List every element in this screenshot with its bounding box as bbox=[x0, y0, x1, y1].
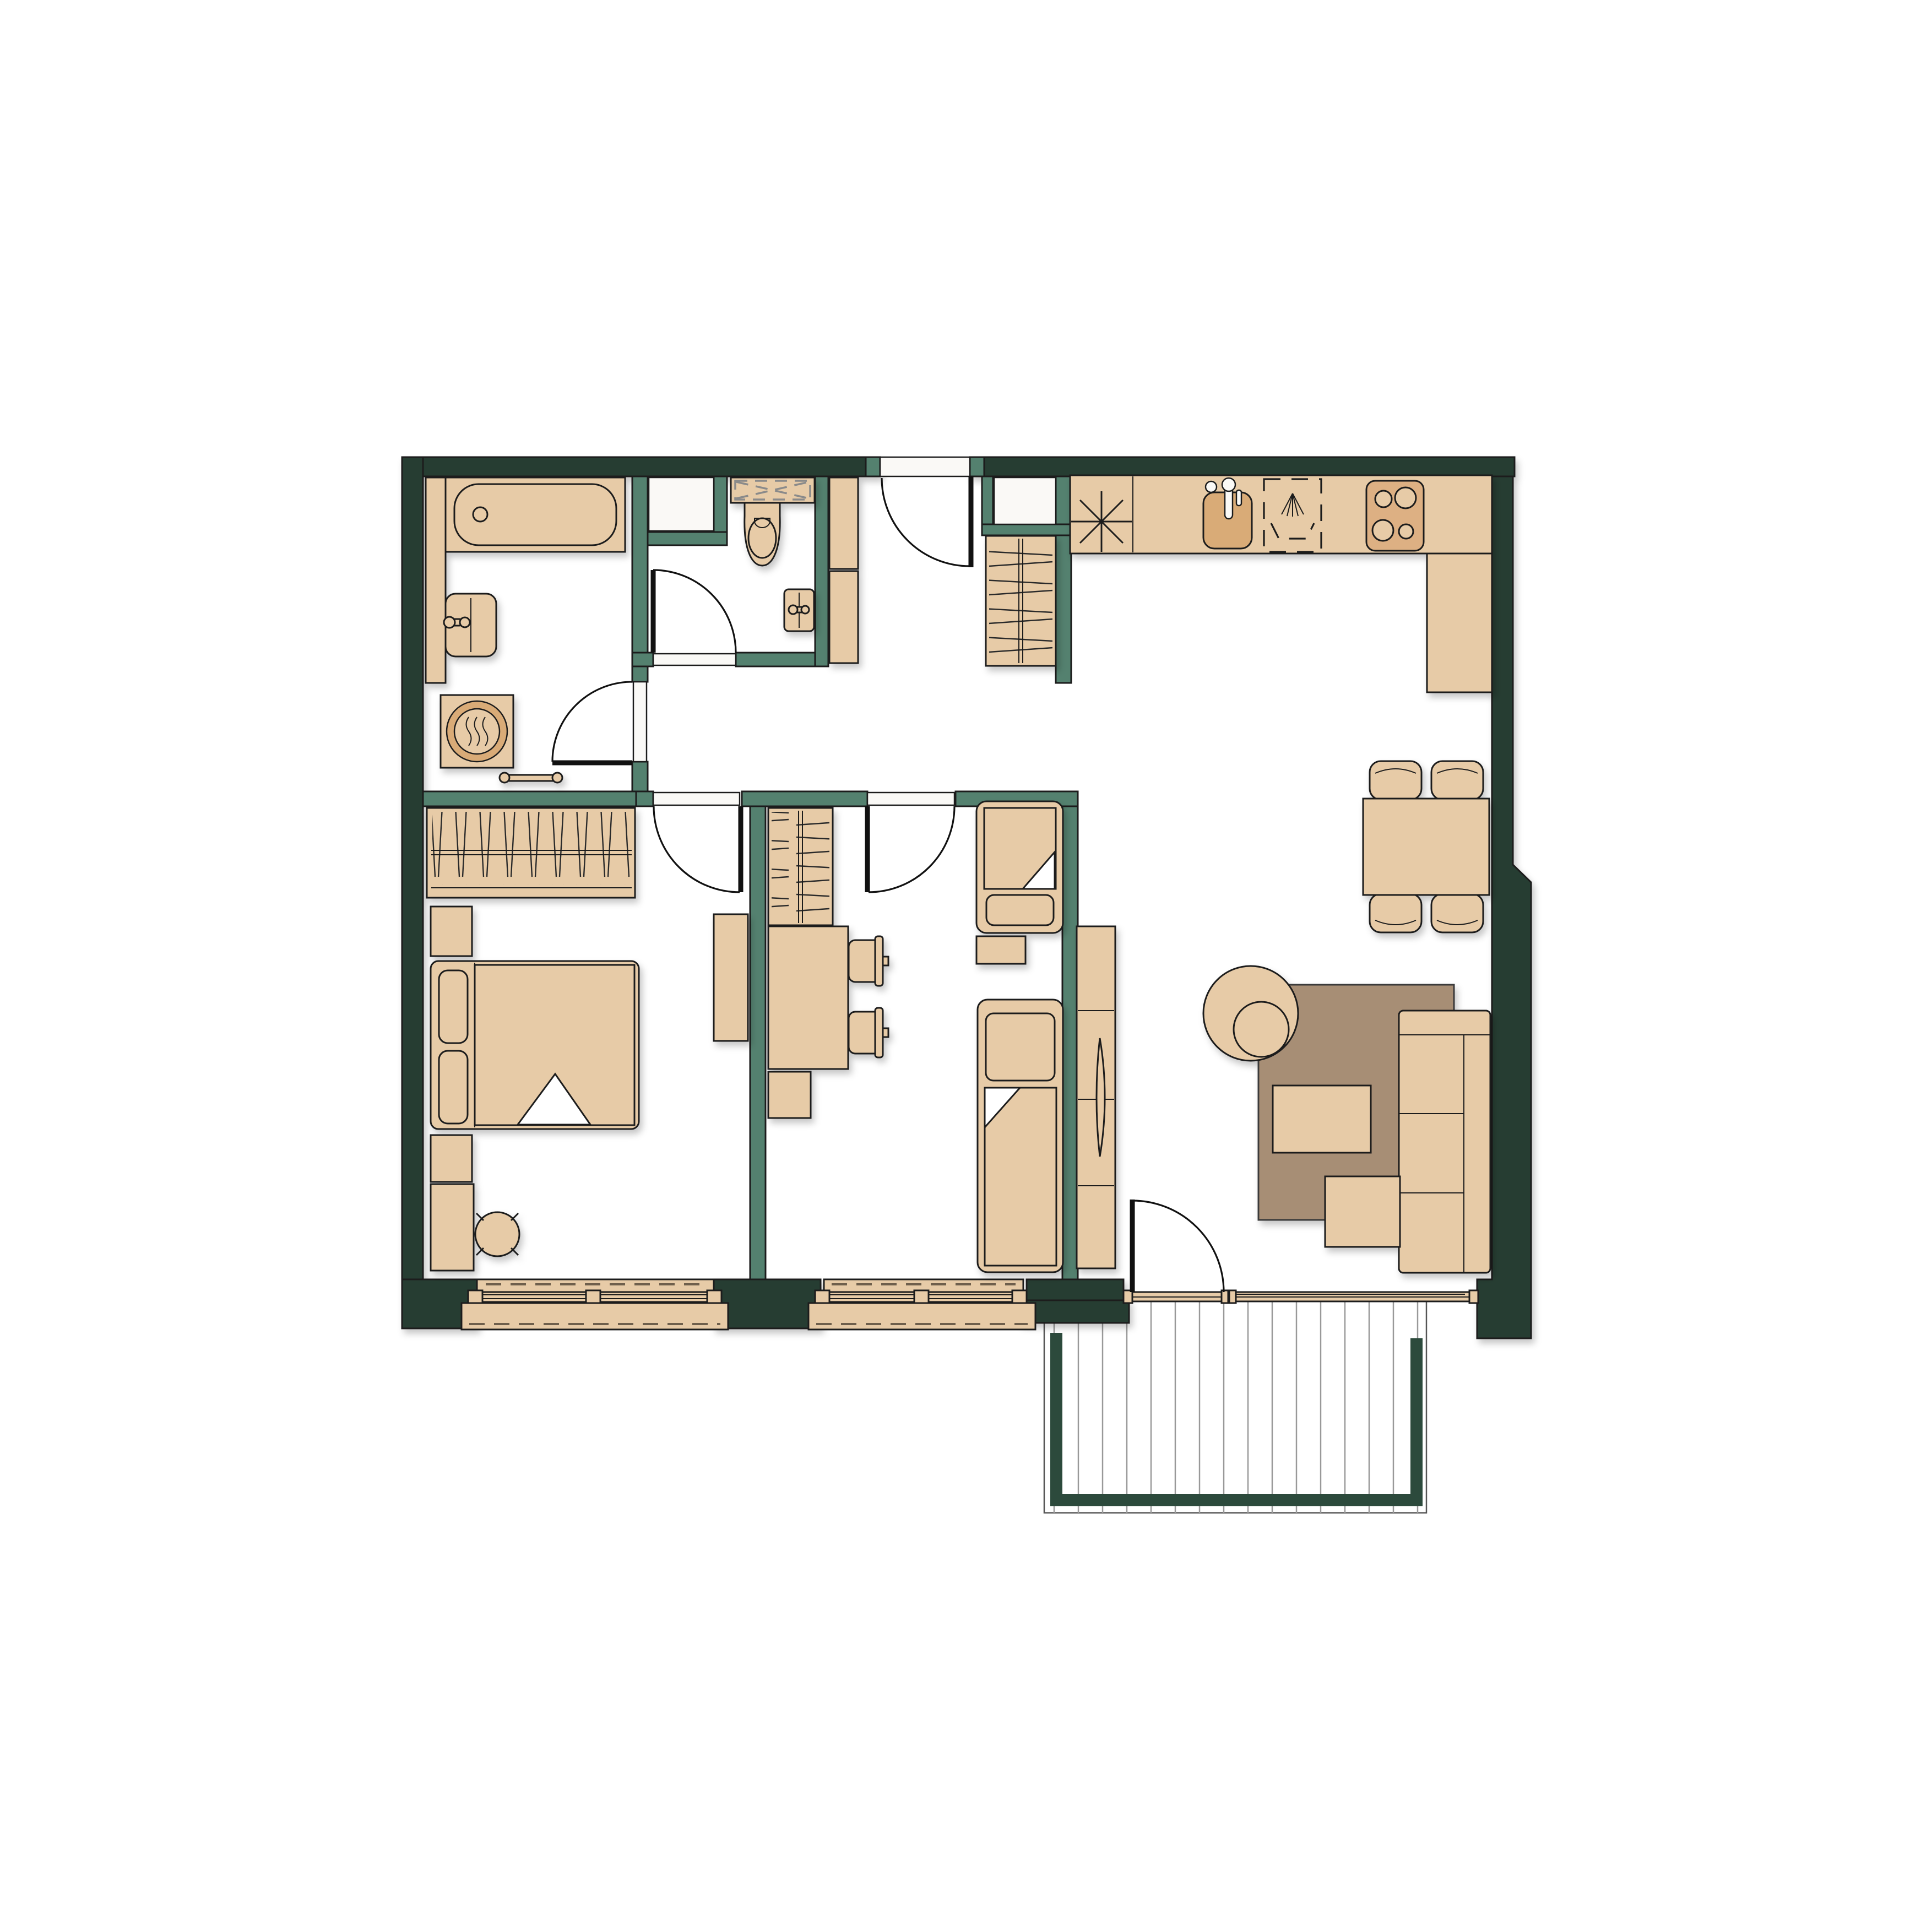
coffee-table bbox=[1273, 1086, 1371, 1153]
chaise bbox=[1325, 1176, 1400, 1247]
wall-bottom-mid bbox=[714, 1279, 821, 1328]
bathroom-door bbox=[552, 682, 632, 763]
window-post bbox=[1012, 1290, 1027, 1303]
wall-bedroom-door-post bbox=[636, 791, 653, 806]
wall-top-right bbox=[970, 457, 1515, 476]
doors bbox=[552, 476, 1224, 1292]
dresser bbox=[431, 1184, 474, 1271]
wall-hall-kitchen bbox=[1056, 476, 1071, 683]
wall-bottom-jog-lower bbox=[1021, 1300, 1129, 1323]
bedroom-closet bbox=[427, 808, 635, 898]
kids-door bbox=[867, 806, 954, 892]
tall-cabinet-lower bbox=[829, 571, 858, 663]
coat-closet bbox=[986, 536, 1056, 666]
balcony-door bbox=[1132, 1200, 1224, 1292]
wall-niche-left bbox=[982, 476, 993, 524]
desk bbox=[768, 926, 848, 1069]
wall-bathroom-right bbox=[632, 476, 648, 682]
toilet bbox=[745, 503, 780, 566]
entrance-door bbox=[882, 476, 971, 567]
window-post bbox=[468, 1290, 482, 1303]
bedroom-shelf bbox=[714, 914, 748, 1041]
tall-cabinet-upper bbox=[829, 477, 858, 569]
single-bed-bottom bbox=[978, 1000, 1063, 1272]
wall-bedroom-top-left bbox=[423, 791, 636, 806]
window-post bbox=[815, 1290, 829, 1303]
water-heater bbox=[441, 695, 513, 768]
wall-corridor-mid bbox=[742, 791, 867, 806]
desk-chair bbox=[849, 936, 888, 986]
wall-left bbox=[402, 457, 423, 1301]
threshold-post bbox=[1469, 1290, 1478, 1303]
wall-niche-bottom bbox=[982, 524, 1071, 535]
bedroom-door-opening bbox=[653, 793, 740, 805]
pillow bbox=[439, 1051, 468, 1124]
balcony-threshold bbox=[1124, 1290, 1478, 1303]
cistern bbox=[731, 477, 815, 503]
window-sill bbox=[462, 1303, 728, 1329]
dining-chair bbox=[1370, 894, 1421, 932]
balcony bbox=[1044, 1301, 1426, 1513]
pillow bbox=[986, 895, 1054, 925]
kitchen-counter-arm bbox=[1427, 553, 1492, 692]
kids-room bbox=[768, 801, 1063, 1272]
balcony-decking bbox=[1044, 1301, 1426, 1513]
window-sill bbox=[808, 1303, 1035, 1329]
bedside-cabinet bbox=[976, 936, 1025, 964]
floor-plan-canvas bbox=[0, 0, 1932, 1932]
bathroom-counter bbox=[426, 477, 446, 683]
desk-chair bbox=[849, 1008, 888, 1057]
entry-post-right bbox=[970, 457, 984, 476]
bedroom-window bbox=[462, 1279, 728, 1329]
wall-bottom-jog-upper bbox=[1027, 1279, 1124, 1301]
dining-chair bbox=[1370, 761, 1421, 800]
double-bed bbox=[431, 961, 639, 1129]
nightstand bbox=[431, 1135, 472, 1182]
dining-chair bbox=[1431, 894, 1483, 932]
wc-sink-cabinet bbox=[784, 589, 814, 631]
window-post bbox=[707, 1290, 721, 1303]
armchair bbox=[1203, 966, 1298, 1061]
wall-wc-bottom-left bbox=[632, 653, 653, 666]
kids-wardrobe bbox=[768, 808, 833, 925]
single-bed-top bbox=[976, 801, 1063, 933]
bathroom bbox=[426, 477, 625, 783]
hall-duct-niche bbox=[994, 477, 1056, 524]
wall-bedroom-kids bbox=[750, 806, 766, 1279]
entry-door-threshold bbox=[880, 457, 970, 476]
wc bbox=[731, 477, 858, 663]
towel-rail bbox=[500, 773, 562, 783]
wc-duct-shaft bbox=[649, 477, 714, 531]
wc-door bbox=[653, 570, 736, 653]
bedroom bbox=[427, 808, 748, 1271]
pillow bbox=[986, 1013, 1055, 1081]
entry-hall bbox=[986, 536, 1056, 666]
kids-cabinet bbox=[768, 1072, 811, 1118]
floor-plan-svg bbox=[0, 0, 1932, 1932]
wall-kids-living bbox=[1062, 806, 1078, 1279]
threshold-post bbox=[1124, 1290, 1132, 1303]
living-kitchen bbox=[1070, 475, 1492, 1273]
wc-door-opening bbox=[653, 654, 736, 665]
wall-shaft-bottom bbox=[648, 532, 727, 545]
kids-door-opening bbox=[867, 793, 954, 805]
tv-sideboard bbox=[1077, 926, 1115, 1268]
stool bbox=[475, 1212, 519, 1256]
window-post bbox=[586, 1290, 600, 1303]
kids-window bbox=[808, 1279, 1035, 1329]
fridge-freezer-symbol bbox=[1071, 491, 1132, 552]
wall-wc-right bbox=[815, 476, 828, 666]
bathtub bbox=[446, 477, 625, 552]
nightstand bbox=[431, 907, 472, 956]
window-post bbox=[914, 1290, 929, 1303]
dining-chair bbox=[1431, 761, 1483, 800]
bedroom-door bbox=[654, 806, 741, 892]
entry-post-left bbox=[866, 457, 880, 476]
threshold-post bbox=[1229, 1290, 1236, 1303]
pillow bbox=[439, 970, 468, 1043]
wall-top-left bbox=[402, 457, 880, 476]
threshold-post bbox=[1222, 1290, 1228, 1303]
dining-table bbox=[1363, 799, 1489, 895]
cooktop bbox=[1366, 481, 1424, 551]
bathroom-door-opening bbox=[633, 682, 647, 762]
bathroom-sink bbox=[444, 594, 496, 656]
